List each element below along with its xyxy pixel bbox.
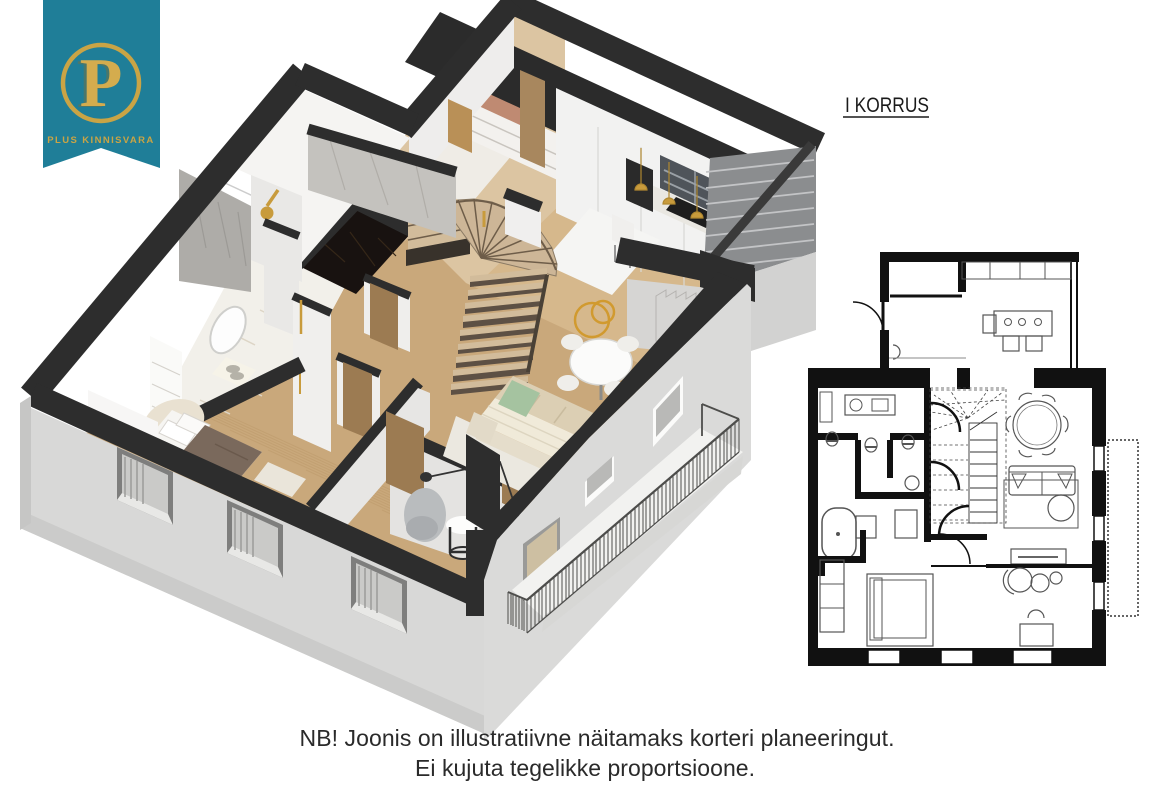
svg-text:Ei kujuta tegelikke proportsio: Ei kujuta tegelikke proportsioone. [415, 755, 755, 781]
svg-text:NB! Joonis on illustratiivne n: NB! Joonis on illustratiivne näitamaks k… [300, 725, 895, 751]
svg-text:I KORRUS: I KORRUS [845, 94, 929, 117]
svg-text:P: P [80, 45, 123, 122]
svg-text:PLUS KINNISVARA: PLUS KINNISVARA [47, 135, 154, 146]
